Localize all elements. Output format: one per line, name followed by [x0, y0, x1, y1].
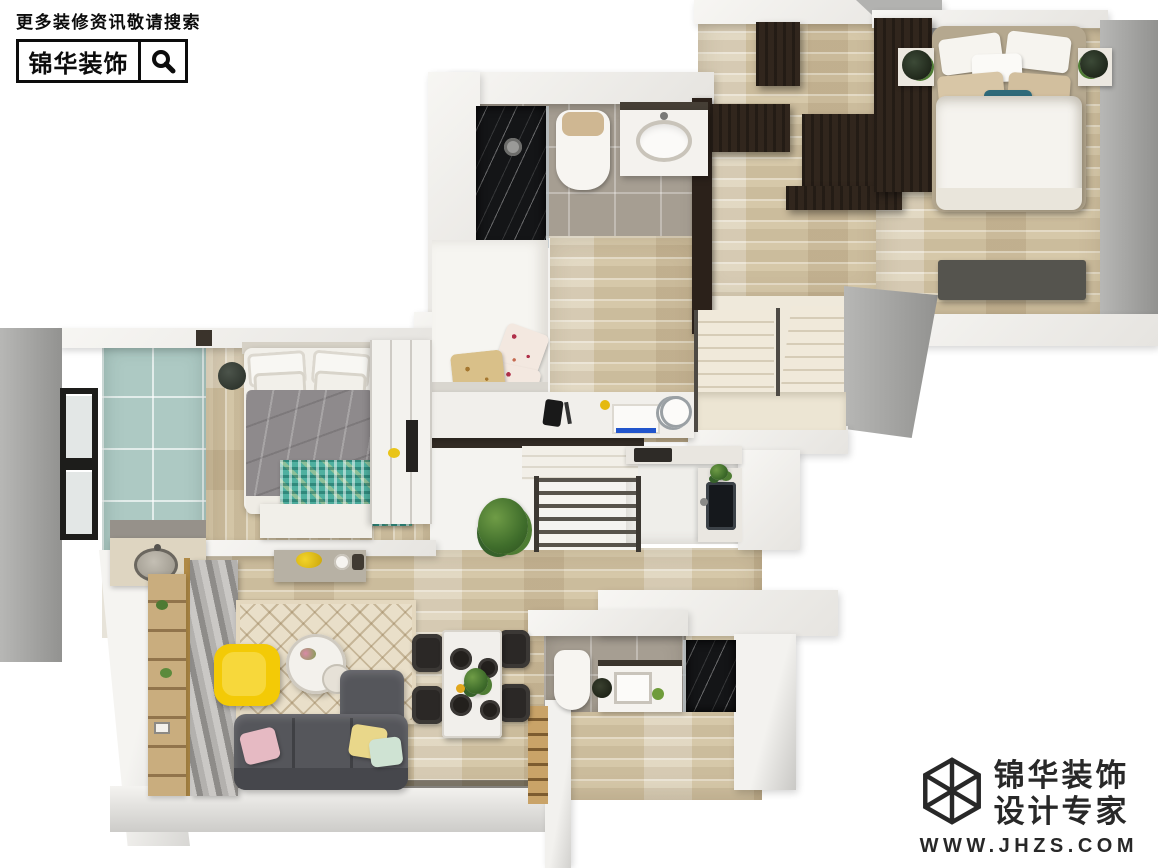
console-yellow-flowers [296, 552, 322, 568]
shower-marble [476, 106, 546, 248]
laundry-faucet [154, 544, 161, 551]
nightstand-plant [1080, 50, 1108, 78]
sofa-pillow-mint [368, 736, 403, 768]
brand-name: 锦华装饰 [19, 42, 138, 80]
center-stair-post [534, 476, 539, 552]
console-plate [334, 554, 350, 570]
tv-bench [938, 260, 1086, 300]
kitchen-plant [710, 464, 728, 480]
watermark-tagline: 更多装修资讯敬请搜索 [16, 8, 201, 33]
dining-plate [450, 694, 472, 716]
watermark-bottom-right: 锦华装饰 设计专家 WWW.JHZS.COM [920, 756, 1138, 858]
bedroom-tr-wardrobe [874, 18, 932, 192]
brand-subtitle: 设计专家 [994, 794, 1130, 830]
dining-centerpiece-plant [464, 668, 488, 694]
yellow-armchair-seat [222, 652, 266, 696]
kitchen-faucet [700, 498, 708, 506]
stair-flight-left [696, 310, 774, 394]
shower-lower-marble [686, 640, 736, 712]
bedside-stool [218, 362, 246, 390]
left-exterior-wall [0, 328, 62, 662]
dining-plate [450, 648, 472, 670]
stair-landing [696, 392, 846, 430]
dining-chair [498, 684, 530, 722]
kitchen-cooktop [634, 448, 672, 462]
vanity-lower-plant-green [652, 688, 664, 700]
floorplan-render: 更多装修资讯敬请搜索 锦华装饰 锦华装饰 设计专家 WWW.JHZS.COM [0, 0, 1158, 868]
dining-chair [498, 630, 530, 668]
compass-decor [660, 396, 692, 428]
sofa-backrest [234, 768, 408, 790]
vanity-upper-sink [636, 120, 692, 162]
dining-plate [480, 700, 500, 720]
desk-phone [542, 399, 563, 427]
balcony-window-pane [66, 394, 92, 458]
center-stair-railing [536, 478, 640, 550]
shower-lower-glass [683, 640, 686, 712]
vanity-upper-faucet [660, 112, 668, 120]
closet-cabinet [756, 22, 800, 86]
lower-right-vertical-wall [734, 634, 796, 790]
master-door-notch [196, 330, 212, 346]
shower-glass [546, 106, 549, 248]
brand-website: WWW.JHZS.COM [920, 835, 1138, 858]
closet-cabinet [710, 104, 790, 152]
center-stair-treads [522, 446, 638, 480]
shelf-plant [156, 600, 168, 610]
desk-yellow-dot [600, 400, 610, 410]
bottom-stair-wall [545, 700, 571, 868]
balcony-window-pane [66, 470, 92, 534]
bottom-ladder [528, 706, 548, 804]
desk-tray-blue [616, 428, 656, 433]
master-foot-bench [260, 504, 372, 538]
laundry-counter-front [110, 520, 206, 538]
watermark-top-left: 更多装修资讯敬请搜索 锦华装饰 [16, 8, 201, 83]
dining-chair [412, 686, 444, 724]
dining-chair [412, 634, 444, 672]
nightstand-plant [902, 50, 932, 80]
stair-railing [776, 308, 780, 396]
brand-search-box: 锦华装饰 [16, 39, 188, 83]
shower-head [504, 138, 522, 156]
brand-name-large: 锦华装饰 [994, 758, 1130, 794]
magnifier-icon [141, 42, 185, 80]
stair-plant [478, 498, 528, 554]
bedroom-tr-sheet-fold [936, 188, 1082, 210]
cube-wireframe-icon [920, 756, 984, 831]
kitchen-right-wall [738, 450, 800, 550]
master-wall-tv [406, 420, 418, 472]
shelf-plant [160, 668, 172, 678]
stairwell-right-grey-wall [844, 286, 938, 438]
vanity-lower-plant-dark [592, 678, 612, 698]
console-vase [352, 554, 364, 570]
toilet-upper-seat [562, 112, 604, 136]
center-stair-post [636, 476, 641, 552]
vanity-lower-sink [614, 672, 652, 704]
toilet-lower [554, 650, 590, 710]
kitchen-sink [706, 482, 736, 530]
bathroom-lower-top-wall [528, 610, 688, 636]
coffee-table-flowers [300, 648, 316, 660]
master-wardrobe [370, 340, 432, 524]
master-yellow-decor [388, 448, 400, 458]
stair-railing [694, 310, 698, 432]
bathroom-upper-top-wall [446, 72, 714, 104]
shelf-frame [154, 722, 170, 734]
dining-yellow-cup [456, 684, 465, 693]
